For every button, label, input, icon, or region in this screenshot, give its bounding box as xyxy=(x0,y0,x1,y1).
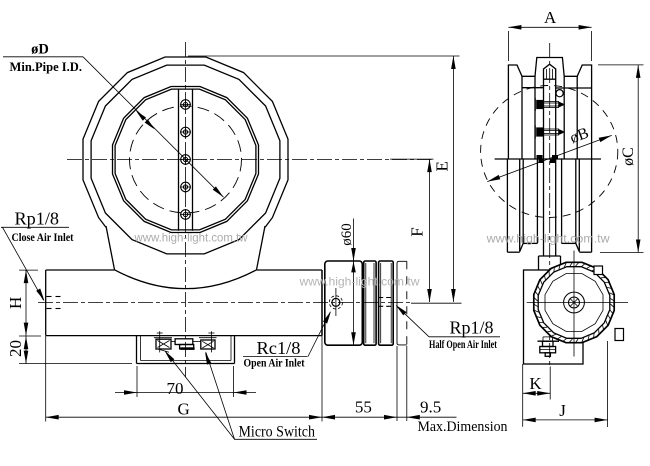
svg-text:ø60: ø60 xyxy=(339,223,355,246)
svg-text:www.high-light.com.tw: www.high-light.com.tw xyxy=(486,232,610,246)
svg-text:øC: øC xyxy=(620,147,637,166)
svg-text:H: H xyxy=(6,297,25,309)
svg-text:Open Air Inlet: Open Air Inlet xyxy=(244,356,305,370)
svg-text:A: A xyxy=(544,8,557,27)
svg-text:www.high-light.com.tw: www.high-light.com.tw xyxy=(298,275,419,289)
svg-text:Max.Dimension: Max.Dimension xyxy=(418,419,508,435)
svg-text:Close Air Inlet: Close Air Inlet xyxy=(12,230,74,244)
svg-text:55: 55 xyxy=(355,398,372,417)
svg-text:Rp1/8: Rp1/8 xyxy=(15,209,59,229)
svg-text:www.high-light.com.tw: www.high-light.com.tw xyxy=(134,231,248,245)
svg-text:J: J xyxy=(559,401,566,420)
svg-text:Min.Pipe I.D.: Min.Pipe I.D. xyxy=(10,59,83,74)
svg-text:øD: øD xyxy=(31,42,49,58)
svg-text:E: E xyxy=(432,161,451,171)
svg-text:Rp1/8: Rp1/8 xyxy=(450,318,494,338)
svg-text:G: G xyxy=(178,400,190,419)
svg-text:70: 70 xyxy=(167,379,184,398)
svg-text:F: F xyxy=(408,227,427,236)
svg-text:9.5: 9.5 xyxy=(420,398,441,417)
svg-text:Micro Switch: Micro Switch xyxy=(239,424,316,441)
svg-text:20: 20 xyxy=(6,340,25,357)
svg-text:Half Open Air Inlet: Half Open Air Inlet xyxy=(429,339,497,351)
svg-text:K: K xyxy=(529,374,542,393)
